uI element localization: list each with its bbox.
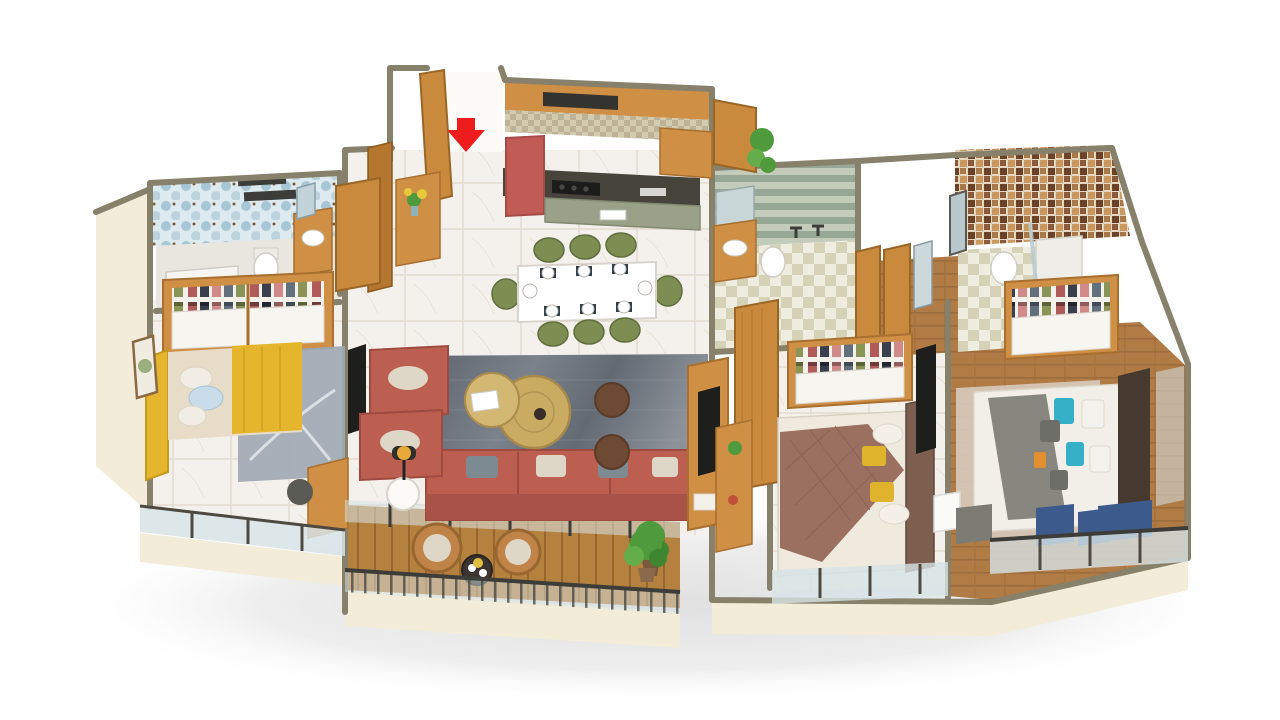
dining-chair <box>492 279 520 309</box>
bathroom-3-toilet <box>991 252 1017 284</box>
bookshelf-wardrobe <box>163 272 333 356</box>
bathroom-3-mirror <box>950 191 966 255</box>
pillow-teal <box>1066 442 1084 466</box>
pillow-white <box>178 406 206 426</box>
corridor-mirror <box>914 241 932 309</box>
bathroom-1-door <box>336 178 380 291</box>
pillow-yellow <box>862 446 886 466</box>
dining-chair <box>538 322 568 346</box>
pillow-grey <box>1050 470 1068 490</box>
sofa-terracotta <box>426 450 702 520</box>
hob-burner <box>559 184 564 189</box>
sofa-pillow-grey <box>466 456 498 478</box>
pillow-white <box>873 424 903 444</box>
wardrobe-doors <box>796 367 904 404</box>
desk-chair <box>287 479 313 505</box>
pillow-yellow <box>870 482 894 502</box>
pillow-orange-accent <box>1034 452 1046 468</box>
bed-3-headboard <box>1118 368 1150 516</box>
wall-art-motif <box>138 359 152 373</box>
pouf-2 <box>595 435 629 469</box>
sofa-pillow-beige <box>536 455 566 477</box>
bathroom-3-mosaic-wall <box>955 145 1130 246</box>
foyer-console-table <box>396 172 440 266</box>
pillow-white <box>879 504 909 524</box>
table-decor <box>534 408 546 420</box>
bedroom-2-wardrobe <box>788 334 912 408</box>
bathroom-2-toilet <box>761 247 785 277</box>
bed-1-yellow-throw <box>232 342 302 434</box>
floor-plan-svg <box>0 0 1280 720</box>
dining-chair <box>654 276 682 306</box>
bedroom-3-right-window <box>1156 366 1184 506</box>
lounge-chair-grey <box>956 504 992 544</box>
wardrobe-doors <box>1012 311 1110 355</box>
bedroom-2-tv-panel <box>916 344 936 454</box>
sofa-pillow-beige <box>652 457 678 477</box>
dining-chair <box>570 235 600 259</box>
bedroom-3-wardrobe <box>1005 275 1118 359</box>
dining-chair <box>534 238 564 262</box>
island-sink <box>600 210 626 220</box>
counter-tray <box>640 188 666 196</box>
bathroom-2-sink <box>723 240 747 256</box>
lamp-glow <box>397 446 411 460</box>
kitchen-tall-unit <box>660 128 712 178</box>
armchair-2 <box>360 410 442 480</box>
desk-plant <box>728 441 742 455</box>
dining-chair <box>610 318 640 342</box>
hob-burner <box>583 186 588 191</box>
bathroom-2-mirror <box>716 186 754 226</box>
table-book <box>471 390 499 411</box>
pouf-1 <box>595 383 629 417</box>
bedroom-2-desk <box>716 420 752 552</box>
pillow-white <box>1082 400 1104 428</box>
vanity-sink <box>302 230 324 246</box>
hob-burner <box>571 185 576 190</box>
floor-plan-render <box>0 0 1280 720</box>
armchair-1 <box>370 346 448 418</box>
dining-chair <box>606 233 636 257</box>
dining-chair <box>574 320 604 344</box>
vanity-mirror <box>297 183 315 219</box>
side-table <box>387 478 419 510</box>
desk-decor <box>728 495 738 505</box>
pillow-grey <box>1040 420 1060 442</box>
pillow-white <box>1090 446 1110 472</box>
red-refrigerator <box>506 136 544 216</box>
bed-2 <box>778 398 934 576</box>
